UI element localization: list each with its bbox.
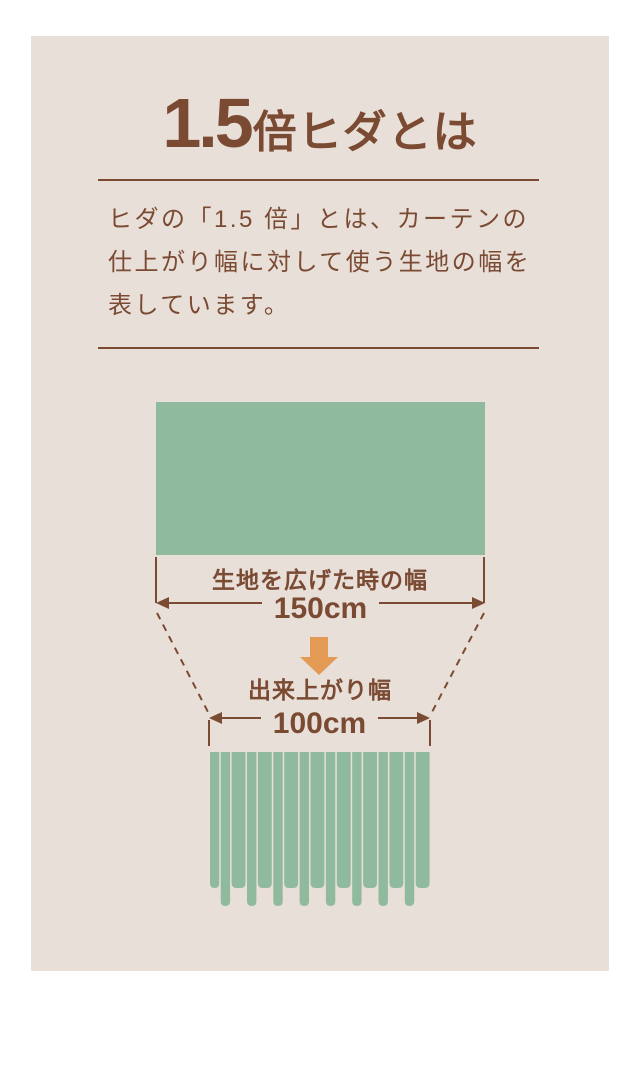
description-text: ヒダの「1.5 倍」とは、カーテンの 仕上がり幅に対して使う生地の幅を 表してい… <box>108 198 531 327</box>
description-line: 仕上がり幅に対して使う生地の幅を <box>108 241 531 284</box>
measure-line <box>379 602 472 604</box>
page: { "colors": { "page": "#FFFFFF", "card":… <box>0 0 640 1076</box>
description-line: 表しています。 <box>108 284 531 327</box>
finished-measure-tick-left <box>208 720 210 746</box>
info-card: 1.5倍ヒダとは ヒダの「1.5 倍」とは、カーテンの 仕上がり幅に対して使う生… <box>31 36 609 971</box>
fabric-rectangle <box>156 402 485 555</box>
down-arrow-icon <box>300 637 338 675</box>
measure-line <box>222 717 261 719</box>
divider-bottom <box>98 347 539 349</box>
page-title: 1.5倍ヒダとは <box>31 88 609 160</box>
divider-top <box>98 179 539 181</box>
curtain-pleats-svg <box>210 752 430 910</box>
arrowhead-left-icon <box>209 712 222 724</box>
finished-width-value: 100cm <box>261 707 378 741</box>
title-ratio-number: 1.5 <box>162 88 250 158</box>
description-line: ヒダの「1.5 倍」とは、カーテンの <box>108 198 531 241</box>
measure-line <box>169 602 262 604</box>
finished-width-measure: 100cm <box>209 700 430 736</box>
title-suffix-text: 倍ヒダとは <box>253 96 478 160</box>
finished-measure-tick-right <box>429 720 431 746</box>
measure-line <box>378 717 417 719</box>
